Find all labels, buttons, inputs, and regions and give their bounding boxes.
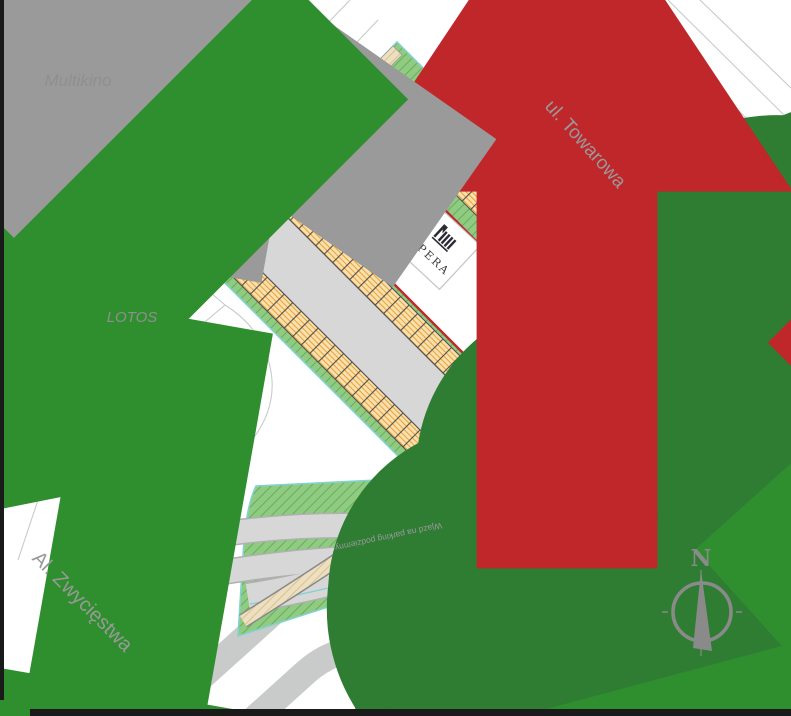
multikino-label: Multikino — [44, 71, 111, 90]
frame-left-bar — [0, 0, 4, 700]
site-plan-map: 4 kondygnacje 5 kondygnacji OPERA Wejści… — [0, 0, 791, 716]
lotos-label: LOTOS — [107, 309, 158, 326]
site-plan-page: 4 kondygnacje 5 kondygnacji OPERA Wejści… — [0, 0, 791, 716]
compass-n-label: N — [690, 545, 711, 572]
frame-bottom-bar — [30, 709, 791, 716]
